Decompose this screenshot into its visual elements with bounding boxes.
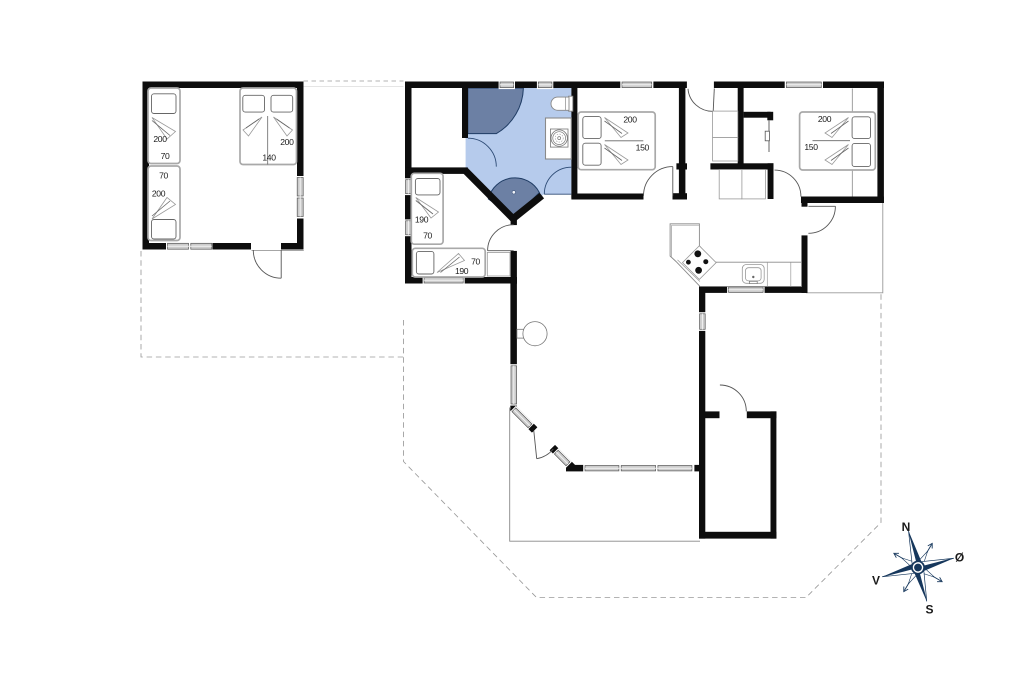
- svg-text:150: 150: [636, 143, 650, 153]
- svg-text:200: 200: [153, 134, 167, 144]
- svg-text:190: 190: [415, 215, 429, 225]
- svg-text:V: V: [872, 574, 880, 588]
- svg-text:150: 150: [804, 142, 818, 152]
- svg-text:200: 200: [623, 114, 637, 124]
- svg-text:N: N: [902, 520, 911, 534]
- svg-text:70: 70: [471, 257, 480, 267]
- svg-text:70: 70: [161, 151, 170, 161]
- svg-text:200: 200: [152, 189, 166, 199]
- svg-text:190: 190: [455, 266, 469, 276]
- svg-text:S: S: [925, 603, 933, 617]
- svg-text:70: 70: [423, 231, 432, 241]
- svg-text:Ø: Ø: [955, 551, 964, 565]
- svg-text:140: 140: [262, 153, 276, 163]
- svg-text:200: 200: [818, 114, 832, 124]
- svg-text:70: 70: [159, 171, 168, 181]
- svg-text:200: 200: [280, 137, 294, 147]
